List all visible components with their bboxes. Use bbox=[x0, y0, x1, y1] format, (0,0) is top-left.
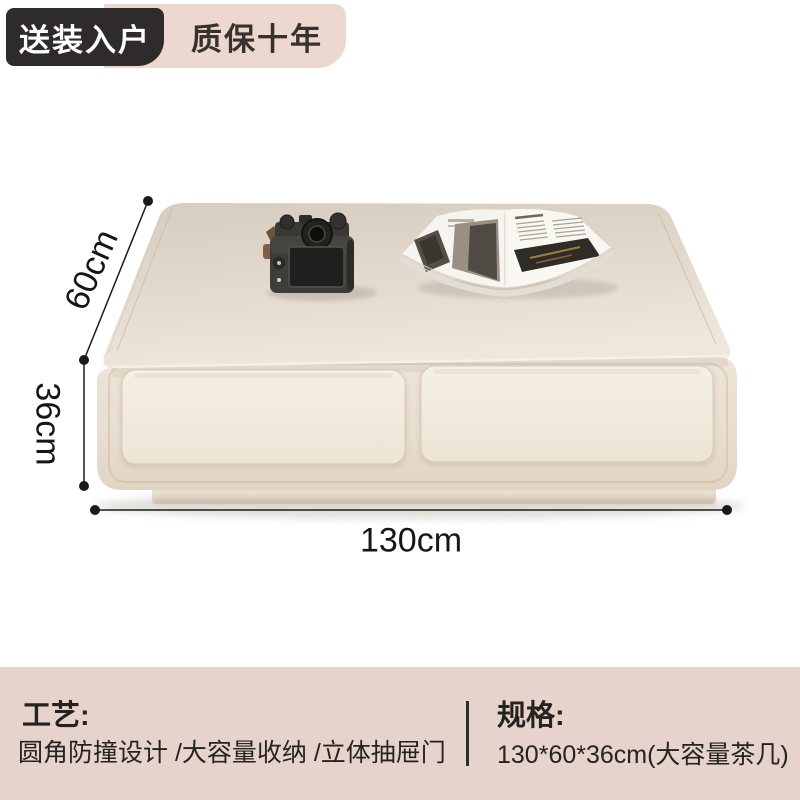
table-ground-shadow bbox=[95, 493, 745, 519]
delivery-badge: 送装入户 bbox=[6, 8, 164, 66]
drawer-right bbox=[419, 366, 715, 466]
dimension-width-label: 130cm bbox=[360, 522, 462, 561]
table-top bbox=[103, 203, 730, 368]
drawer-frame-groove bbox=[109, 364, 727, 482]
tabletop-cast-shadow bbox=[112, 356, 728, 378]
dimension-height-label: 36cm bbox=[28, 382, 67, 465]
craft-title: 工艺: bbox=[22, 700, 90, 733]
info-bar: 工艺: 圆角防撞设计 /大容量收纳 /立体抽屉门 规格: 130*60*36cm… bbox=[0, 667, 800, 800]
craft-description: 圆角防撞设计 /大容量收纳 /立体抽屉门 bbox=[18, 738, 446, 768]
delivery-badge-label: 送装入户 bbox=[19, 15, 151, 60]
magazine bbox=[400, 209, 618, 299]
spec-description: 130*60*36cm(大容量茶几) bbox=[497, 740, 789, 770]
info-divider bbox=[466, 701, 469, 766]
table-front-face bbox=[97, 356, 737, 490]
drawer-left bbox=[120, 370, 407, 468]
camera bbox=[263, 213, 377, 301]
spec-title: 规格: bbox=[497, 700, 565, 733]
dimension-lines bbox=[79, 196, 732, 515]
warranty-badge-label: 质保十年 bbox=[191, 14, 323, 59]
dimension-depth-label: 60cm bbox=[57, 224, 126, 316]
table-base bbox=[152, 484, 716, 504]
product-card: 质保十年 送装入户 60cm 36cm 130cm 工艺: 圆角防撞设计 /大容… bbox=[0, 0, 800, 800]
